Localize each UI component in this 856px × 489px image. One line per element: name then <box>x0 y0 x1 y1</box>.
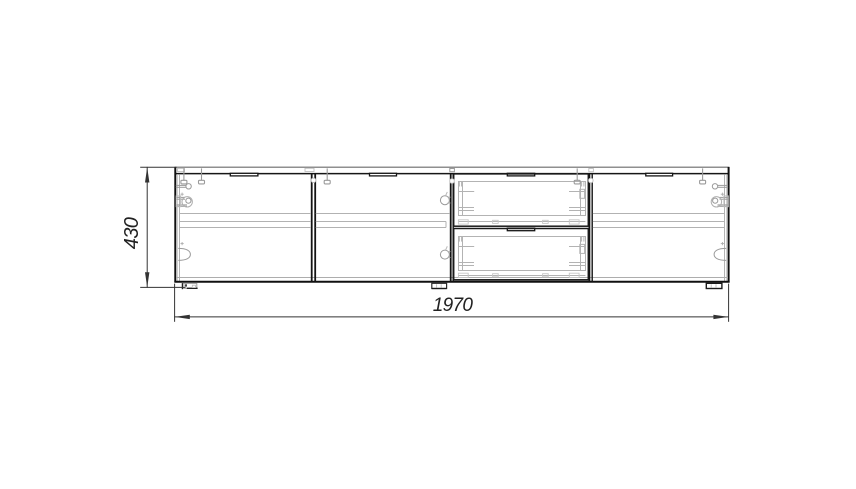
svg-text:1970: 1970 <box>433 295 474 316</box>
svg-text:430: 430 <box>121 217 143 249</box>
